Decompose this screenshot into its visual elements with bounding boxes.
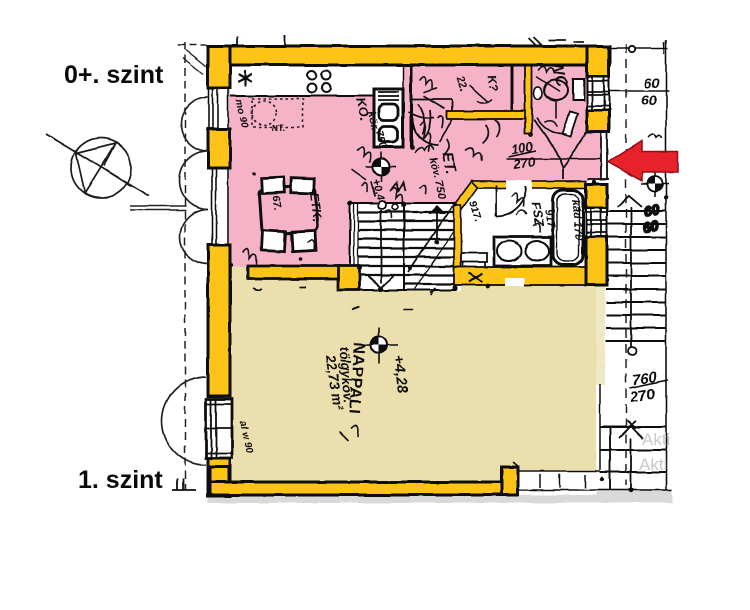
svg-text:NT.: NT. <box>272 123 286 133</box>
svg-text:Akti: Akti <box>639 455 667 474</box>
svg-text:ETK.: ETK. <box>307 192 325 223</box>
svg-text:60: 60 <box>644 75 660 91</box>
svg-text:1. szint: 1. szint <box>78 466 163 494</box>
svg-text:60: 60 <box>641 92 657 108</box>
svg-text:Akti: Akti <box>642 430 670 449</box>
svg-text:0+. szint: 0+. szint <box>64 61 164 89</box>
